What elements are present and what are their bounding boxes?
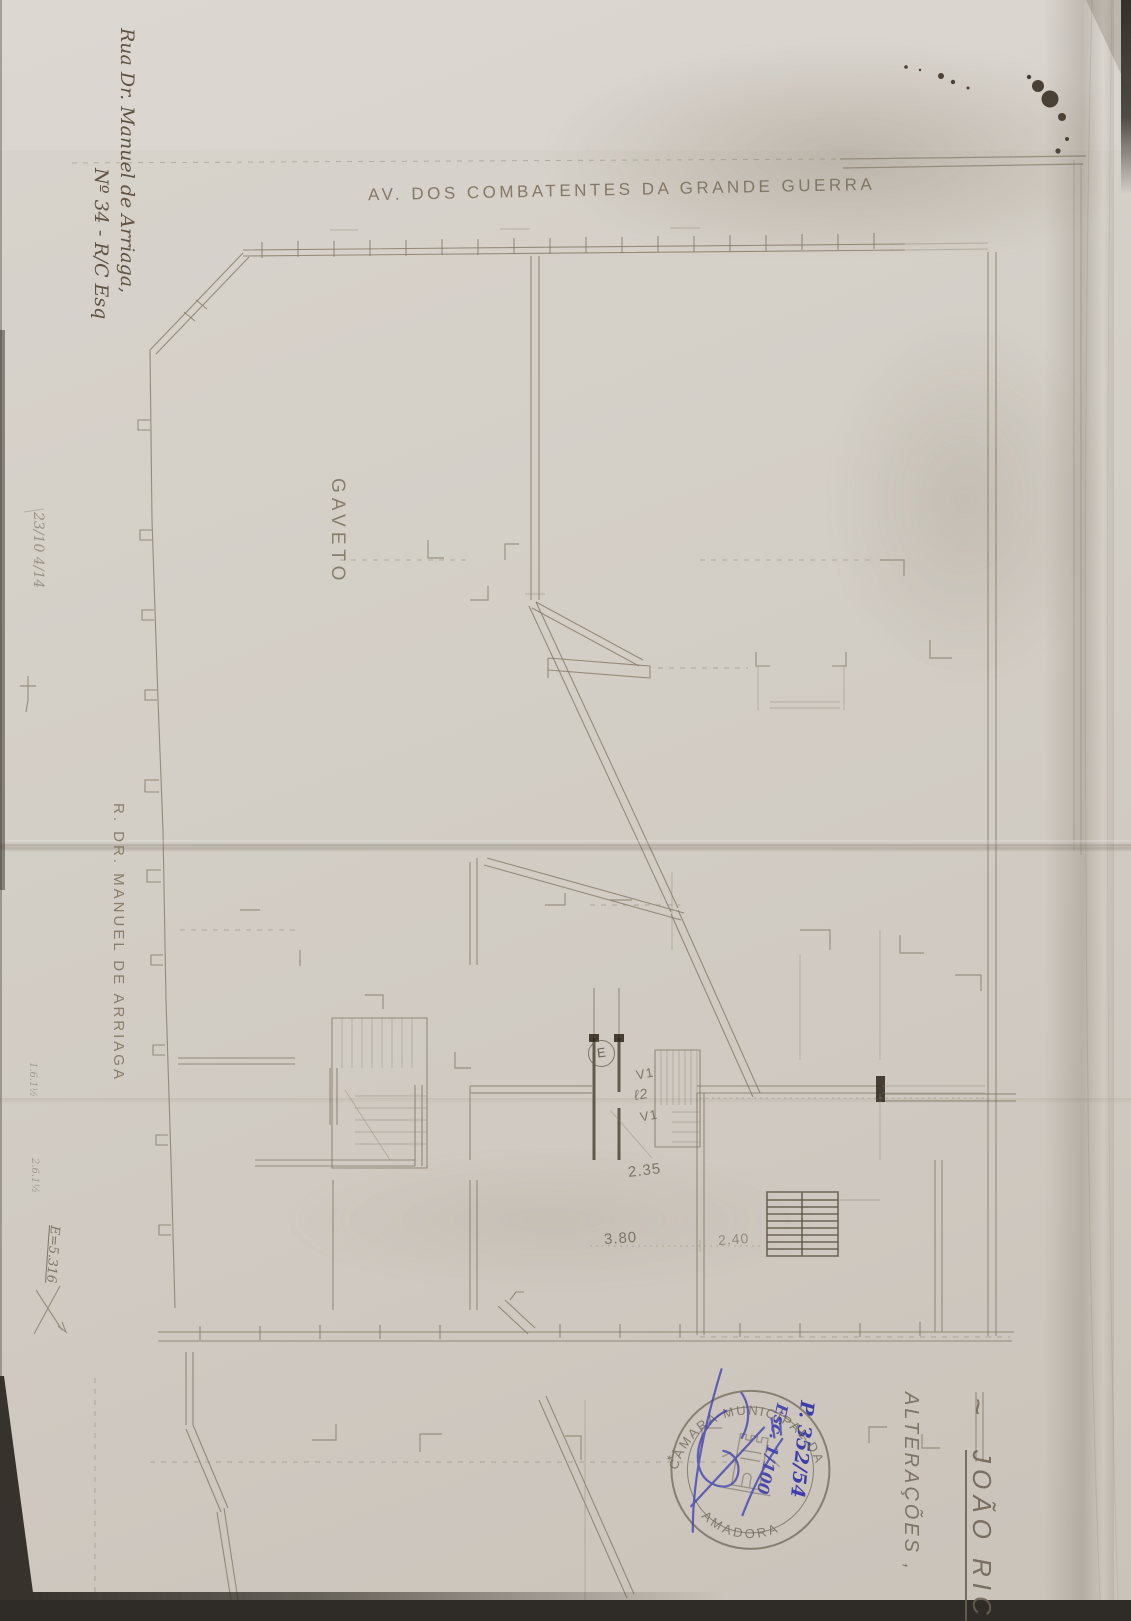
svg-text:AMADORA: AMADORA — [697, 1507, 785, 1548]
address-line-2: Nº 34 - R/C Esq — [90, 168, 112, 319]
lower-facade — [158, 1292, 1014, 1341]
municipal-stamp: CÂMARA MUNICIPAL DA AMADORA ✶ — [643, 1342, 861, 1581]
street-boundary-lines — [72, 156, 1086, 855]
window-mark-top: V1 — [635, 1065, 655, 1083]
ink-blots — [904, 65, 1069, 153]
address-line-1: Rua Dr. Manuel de Arriaga, — [116, 28, 138, 293]
light-shaft-mark: ℓ2 — [633, 1085, 650, 1103]
window-mark-bottom: V1 — [639, 1107, 659, 1125]
corner-lot-label: GAVETO — [326, 478, 348, 585]
entrance-hall — [470, 988, 985, 1160]
scanned-floor-plan-photo: AV. DOS COMBATENTES DA GRANDE GUERRA GAV… — [0, 0, 1131, 1600]
left-facade — [138, 350, 175, 1308]
tilde-mark: ~ — [960, 1398, 994, 1416]
stamp-arc-bottom-text: AMADORA — [697, 1507, 785, 1548]
upper-room-walls — [180, 540, 981, 1060]
subject-label: ALTERAÇÕES , — [899, 1392, 922, 1572]
dimension-right: 2.40 — [717, 1230, 749, 1248]
margin-note-a: 1.6.1½ — [27, 1062, 38, 1097]
margin-note-date: 23/10 4/14 — [30, 512, 46, 588]
courtyard-diagonals — [484, 256, 846, 1097]
top-facade — [150, 228, 988, 354]
floor-plan-drawing — [0, 0, 1131, 1600]
lower-rooms — [333, 1093, 942, 1335]
dimension-left: 3.80 — [603, 1229, 637, 1248]
margin-marks — [20, 509, 66, 1334]
left-wing-interior — [178, 995, 471, 1168]
street-name-left: R. DR. MANUEL DE ARRIAGA — [110, 803, 127, 1082]
right-property-line — [882, 252, 1016, 1336]
margin-note-b: 2.6.1½ — [29, 1158, 40, 1193]
applicant-name: JOÃO RIC — [966, 1450, 997, 1621]
paper-creases — [0, 0, 1131, 1600]
